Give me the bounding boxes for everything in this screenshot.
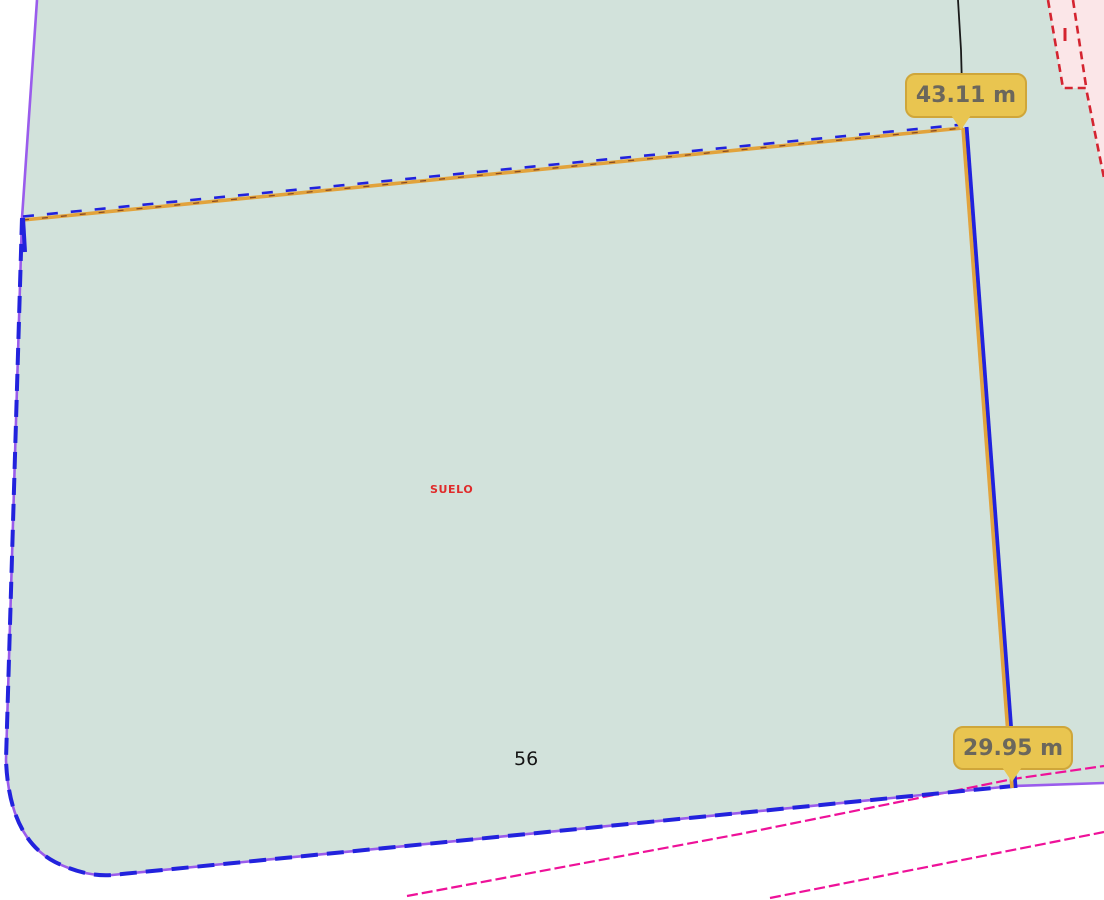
map-layers xyxy=(0,0,1104,900)
map-canvas[interactable]: SUELO 56 43.11 m 29.95 m xyxy=(0,0,1104,900)
road-line-magenta-2 xyxy=(770,832,1104,898)
tooltip-pointer xyxy=(1002,767,1022,782)
left-vertex-blue-tick xyxy=(23,218,25,252)
parcel-number-label: 56 xyxy=(514,748,538,770)
measurement-tooltip-top: 43.11 m xyxy=(905,73,1027,118)
measurement-value-top: 43.11 m xyxy=(916,83,1016,108)
measurement-value-right: 29.95 m xyxy=(963,736,1063,761)
land-use-label: SUELO xyxy=(430,483,473,496)
tooltip-pointer xyxy=(951,115,971,130)
measurement-tooltip-right: 29.95 m xyxy=(953,726,1073,770)
